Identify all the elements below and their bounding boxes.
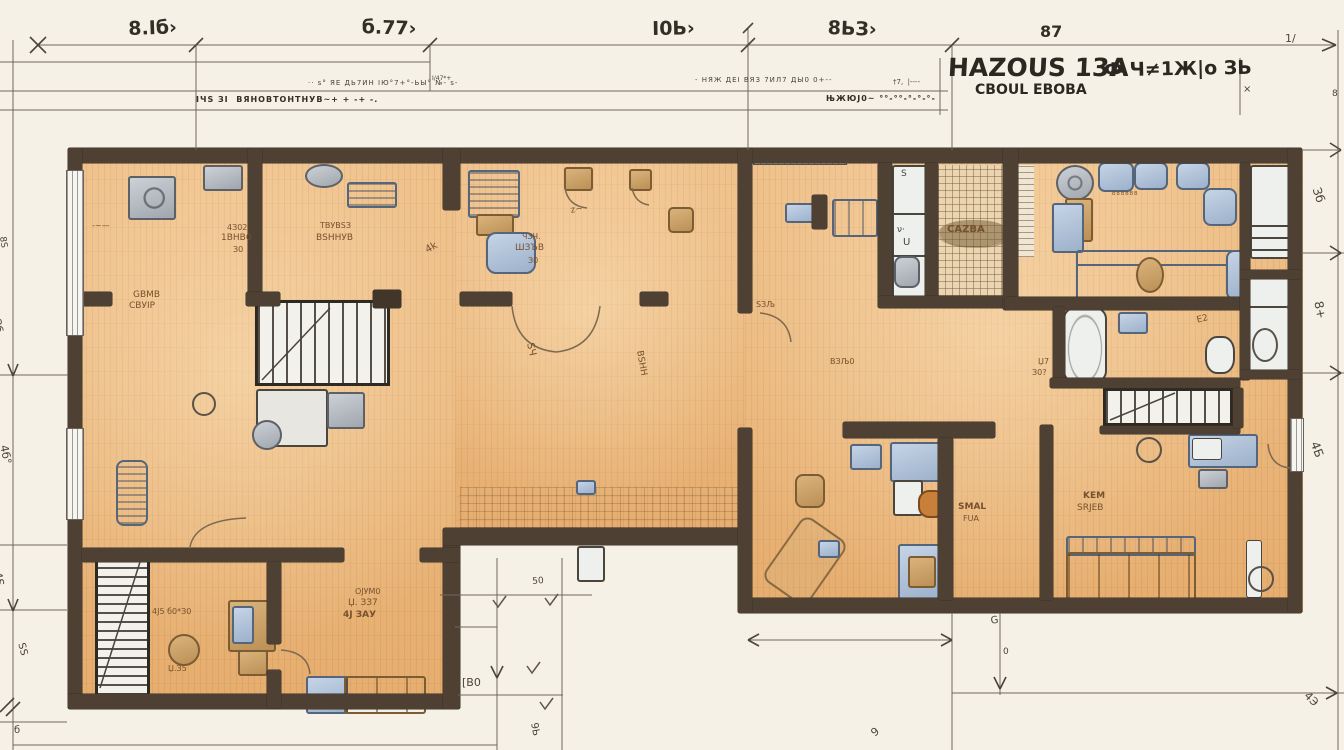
schedule-row-6: І/47*+ <box>432 76 451 82</box>
wall-right <box>1288 148 1302 613</box>
pouf <box>795 474 825 508</box>
wall-right-bath-div2 <box>1240 370 1302 379</box>
wall-mid-left-vert <box>443 148 460 210</box>
window-shelf <box>347 182 397 208</box>
dim-top-3: І0Ь› <box>652 19 695 39</box>
bath-cell-right-2 <box>1245 277 1289 307</box>
dim-left-2: Зб <box>0 318 4 334</box>
room-label-15: Џ.З5 <box>168 665 187 673</box>
window-right-door <box>1290 418 1304 472</box>
room-label-8: ВЗЉ0 <box>830 358 854 366</box>
wall-mid-stub-left <box>460 292 512 306</box>
toilet-bowl-ring <box>1252 328 1278 362</box>
bed-right-small <box>1052 203 1084 253</box>
nightstand <box>238 650 268 676</box>
title-block-subtitle: CBOUL EBOBA <box>975 82 1087 98</box>
dim-left-1: 8Ѕ <box>0 236 8 249</box>
radiator <box>116 460 148 526</box>
stairs-right <box>1103 388 1233 426</box>
dim-left-3: 4б° <box>0 444 13 465</box>
wardrobe <box>468 170 520 218</box>
stool <box>668 207 694 233</box>
wall-left-lower-b <box>420 548 460 562</box>
hall-bench <box>785 203 815 223</box>
wall-corridor-T-v <box>938 438 953 600</box>
wall-stub-1 <box>82 292 112 306</box>
wall-right-stairs-top <box>1050 378 1240 388</box>
room-label-9b: FUA <box>963 515 979 523</box>
sink-mid <box>894 256 920 288</box>
kitchen-cabinets <box>1066 552 1196 601</box>
dim-right-6: 4Б <box>1309 440 1326 459</box>
dim-bottom-5: 0 <box>1003 648 1009 657</box>
room-label-11b: З0? <box>1032 369 1046 377</box>
chair-row-2 <box>1134 162 1168 190</box>
room-label-16c: 4Ј ЗАУ <box>343 611 376 620</box>
dim-bottom-2: [В0 <box>462 677 481 688</box>
room-label-1a: GВМВ <box>133 291 160 300</box>
wall-kitchen-right <box>1003 148 1018 310</box>
dim-right-2: 8 <box>1332 90 1338 99</box>
wall-mid-stub-right <box>640 292 668 306</box>
door-leaf-1 <box>564 167 593 191</box>
room-label-14: 4Ј5 б0*З0 <box>152 608 191 616</box>
wall-bedroom-divider-a <box>267 562 281 644</box>
room-label-7: ЅЗЉ <box>756 301 775 309</box>
bidet-small <box>818 540 840 558</box>
room-label-9a: SMAL <box>958 503 986 512</box>
wall-divider-mid-right-bottom <box>738 428 752 613</box>
stairs-left <box>95 552 150 698</box>
dim-bottom-1: 50 <box>532 577 544 587</box>
bath-mat <box>1118 312 1148 334</box>
bath-cell-right-1 <box>1250 165 1292 259</box>
room-label-2a: 4З02 <box>227 224 247 232</box>
room-label-17: CAZBA <box>947 225 985 235</box>
room-label-18: -~— <box>92 222 110 230</box>
dim-bottom-3: 9Ь <box>528 722 540 737</box>
cabinet-small <box>203 165 243 191</box>
title-block-side-text: Ф Ч≠1Ж|о ЗЬ <box>1104 57 1252 82</box>
window-left-2 <box>66 428 84 520</box>
dim-top-2: б.77› <box>361 18 416 39</box>
cabinet-blue <box>850 444 882 470</box>
wall-left-lower-a <box>82 548 344 562</box>
wall-middle-bottom <box>443 528 752 545</box>
room-label-10b: SRJEB <box>1077 504 1103 513</box>
room-label-5: ЅЧ <box>524 342 537 357</box>
counter-item <box>1198 469 1228 489</box>
desk-chair <box>252 420 282 450</box>
twin-chairs <box>832 199 878 237</box>
wall-bottom-right <box>738 598 1302 613</box>
terrace-tiled-strip <box>460 487 740 528</box>
shower-seat <box>908 556 936 588</box>
floor-plan-canvas: HAZOUS 13A CBOUL EBOBA Ф Ч≠1Ж|о ЗЬ 8.Іб›… <box>0 0 1344 750</box>
wall-bedroom-divider-b <box>267 670 281 708</box>
wall-bath-mid-cap <box>878 296 1018 308</box>
title-block-title: HAZOUS 13A <box>947 53 1129 82</box>
room-label-11a: Џ7 <box>1038 358 1049 366</box>
wall-courtyard-left <box>443 540 460 709</box>
basin-oval <box>305 164 343 188</box>
side-table <box>1203 188 1237 226</box>
door-leaf-2 <box>629 169 652 191</box>
window-left-1 <box>66 170 84 336</box>
wall-bath-mid-left <box>878 163 892 303</box>
dim-left-5: ЅЅ <box>15 642 28 657</box>
room-label-2c: З0 <box>233 246 243 254</box>
dim-right-7: 4Э <box>1302 690 1320 708</box>
wall-stub-2 <box>246 292 280 306</box>
spiral-chair <box>1056 165 1094 201</box>
wall-left-room-divider <box>248 148 262 302</box>
wall-right-horizontal <box>1005 297 1243 310</box>
wall-tubroom-left <box>1053 307 1065 382</box>
ottoman <box>168 634 200 666</box>
floor-drain <box>1248 566 1274 592</box>
dim-left-4: 4Ѕ <box>0 571 5 587</box>
chair-row-1 <box>1098 162 1134 192</box>
room-label-4c: З0 <box>528 257 538 265</box>
toilet-right <box>1205 336 1235 374</box>
dim-right-5: 8+ <box>1312 300 1327 320</box>
wall-right-room2-v <box>1040 425 1053 600</box>
stair-landing <box>373 290 401 308</box>
dim-top-5: 87 <box>1040 24 1062 40</box>
wall-right-bath-div1 <box>1240 270 1302 279</box>
vent-small <box>576 480 596 495</box>
room-label-3b: ВЅННУВ <box>316 234 353 243</box>
room-label-10a: KEM <box>1083 492 1105 501</box>
fixture-glyph-1: Ѕ <box>901 170 907 179</box>
dim-bottom-6: 9 <box>869 726 881 739</box>
room-label-12: ВВВВВВ <box>1112 192 1139 197</box>
dim-bottom-4: G <box>990 616 999 627</box>
dim-top-1: 8.Іб› <box>128 18 177 39</box>
room-label-16a: ОЈУМ0 <box>355 588 381 596</box>
terrace-opening <box>577 546 605 582</box>
wall-corridor-stub <box>812 195 827 229</box>
dim-right-3: × <box>1243 85 1251 95</box>
closet-shelving <box>1018 165 1034 257</box>
room-label-3a: ТВУВЅЗ <box>320 222 351 230</box>
wall-corridor-T-h <box>843 422 995 438</box>
room-label-16b: Џ. ЗЗ7 <box>348 599 378 608</box>
bath-cell <box>890 442 942 482</box>
wall-divider-mid-right-top <box>738 148 752 313</box>
dim-top-4: 8ЬЗ› <box>827 19 877 40</box>
dim-right-4: Зб <box>1311 186 1327 204</box>
dim-left-6: б <box>14 726 20 736</box>
bathtub <box>1063 307 1107 383</box>
schedule-row-5: †7, |---- <box>893 79 920 86</box>
schedule-row-3: - НЯЖ ДЕІ ВЯЗ 7ИЛ7 ДЫ0 0+-- <box>695 77 833 84</box>
fixture-glyph-2: ν· <box>897 226 905 235</box>
room-label-4b: ШЗЪВ <box>515 244 544 253</box>
room-label-1b: СВУІР <box>129 302 155 311</box>
ceiling-light <box>192 392 216 416</box>
pillow-left <box>232 606 254 644</box>
schedule-row-2: ІЧЅ ЗІ ВЯНОВТОНТНУВ~+ + -+ -. <box>196 96 378 104</box>
wall-right-stairs-end <box>1233 388 1243 428</box>
wall-bath-mid-right <box>925 163 938 303</box>
wall-right-stairs-bottom <box>1100 426 1240 434</box>
schedule-row-4: ЊЖЮЈ0~ °°-°°-°-°-°- <box>826 95 936 103</box>
room-label-2b: 1ВНВ0 <box>221 234 252 243</box>
wall-bottom-left <box>68 694 460 709</box>
sofa-cushion <box>1136 257 1164 293</box>
chair-row-3 <box>1176 162 1210 190</box>
counter-sink-bowl <box>1192 438 1222 460</box>
stairs-main <box>255 300 390 386</box>
laptop <box>327 392 365 429</box>
fixture-glyph-3: U <box>903 238 910 248</box>
dim-right-1: 1/ <box>1285 33 1296 44</box>
room-label-4a: ЧЗЧ. <box>522 233 541 241</box>
ceiling-light-2 <box>1136 437 1162 463</box>
stove-icon <box>128 176 176 220</box>
